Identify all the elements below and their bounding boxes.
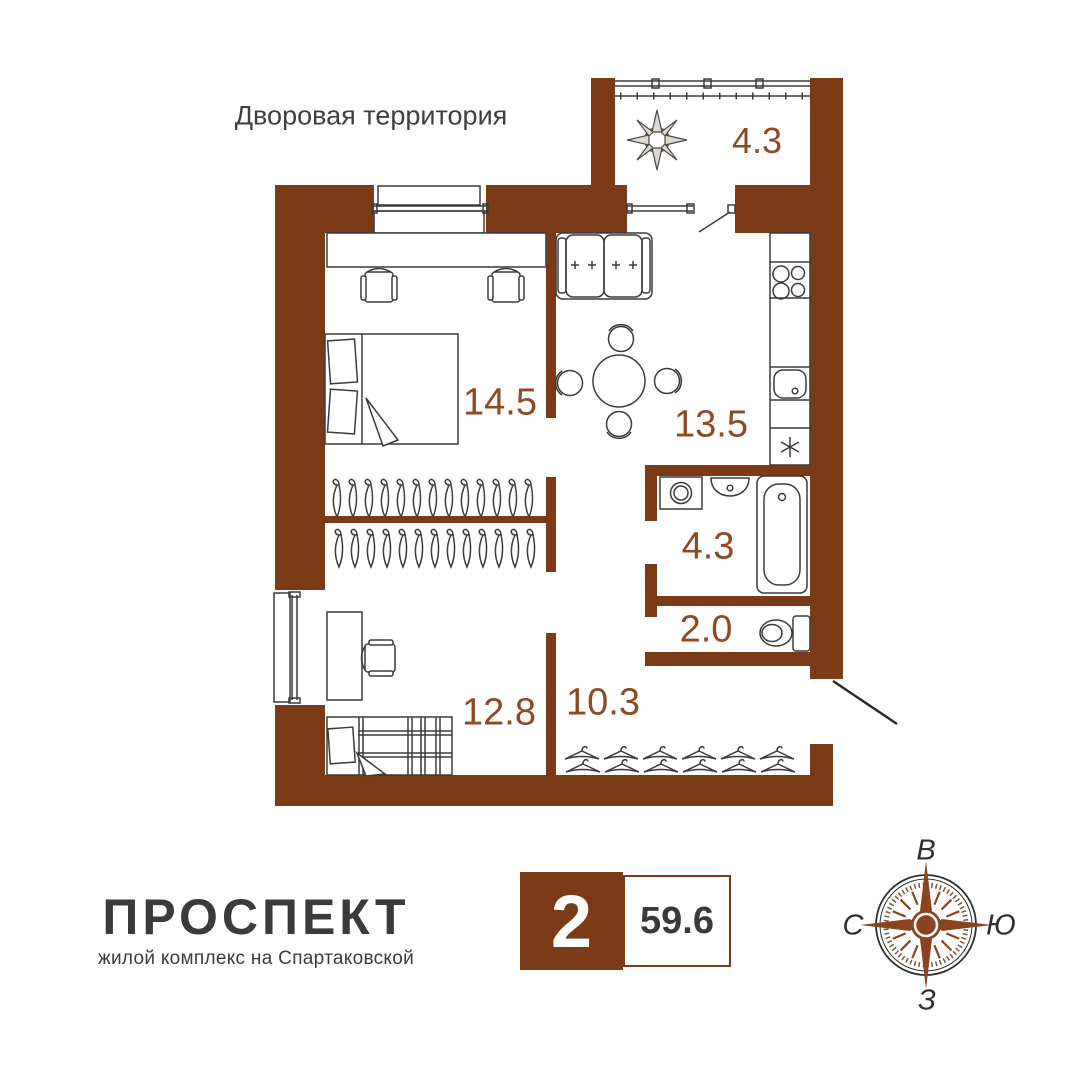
compass-south-label: Ю [986, 910, 1016, 943]
logo-name: ПРОСПЕКТ [70, 891, 442, 944]
room-area-bedroom2: 12.8 [462, 692, 536, 735]
wall-left [275, 185, 325, 806]
logo: ПРОСПЕКТ жилой комплекс на Спартаковской [70, 891, 442, 970]
compass-west-label: З [918, 985, 936, 1018]
single-bed-icon [327, 717, 452, 776]
rooms-count-badge: 2 [520, 872, 623, 970]
compass-east-label: В [916, 835, 935, 868]
desk-icon [327, 233, 546, 267]
double-bed-icon [325, 334, 458, 446]
plant-icon [627, 110, 687, 170]
partition-room-hallway [546, 633, 556, 775]
partition-bedroom-kitchen [546, 233, 556, 418]
total-area-badge: 59.6 [623, 875, 731, 967]
wall-bottom [275, 775, 833, 806]
room-area-hallway: 10.3 [566, 682, 640, 725]
wc-furniture [760, 616, 810, 651]
toilet-icon [760, 616, 810, 651]
dining-table-icon [556, 325, 682, 439]
partition-wardrobe [546, 477, 556, 572]
balcony-glazing-icon [615, 79, 810, 96]
wall-top [275, 185, 843, 233]
pillow-icon [328, 727, 355, 764]
desk-icon [327, 612, 362, 700]
room-area-bathroom: 4.3 [682, 526, 735, 569]
entrance-door-icon [833, 681, 897, 724]
room-area-bedroom: 14.5 [463, 382, 537, 425]
room2-furniture [327, 612, 452, 776]
wall-bathroom-left-a [645, 465, 657, 521]
hallway-hangers [565, 747, 795, 772]
pillow-icon [327, 389, 357, 434]
wardrobe-hangers [333, 479, 534, 567]
compass-north-label: С [843, 910, 864, 943]
sofa-icon [556, 233, 652, 299]
room-area-balcony: 4.3 [732, 120, 782, 162]
wall-wc-left [645, 596, 657, 617]
wall-right-lower [810, 744, 833, 775]
floorplan-page: Дворовая территория [0, 0, 1080, 1080]
wall-bath-wc-divider [645, 596, 810, 606]
room-area-kitchen: 13.5 [674, 404, 748, 447]
pillow-icon [328, 339, 358, 384]
wall-right-upper [810, 78, 843, 679]
compass-rose-icon [846, 845, 1006, 1005]
wall-bathroom-top [645, 465, 810, 476]
washing-machine-icon [660, 477, 702, 509]
kitchen-counter-icon [770, 233, 810, 465]
logo-tagline: жилой комплекс на Спартаковской [70, 948, 442, 970]
wall-wc-bottom [645, 652, 810, 666]
wall-balcony-left [591, 78, 615, 185]
room-area-wc: 2.0 [680, 609, 733, 652]
washbasin-icon [711, 478, 749, 496]
bathtub-icon [757, 476, 807, 593]
